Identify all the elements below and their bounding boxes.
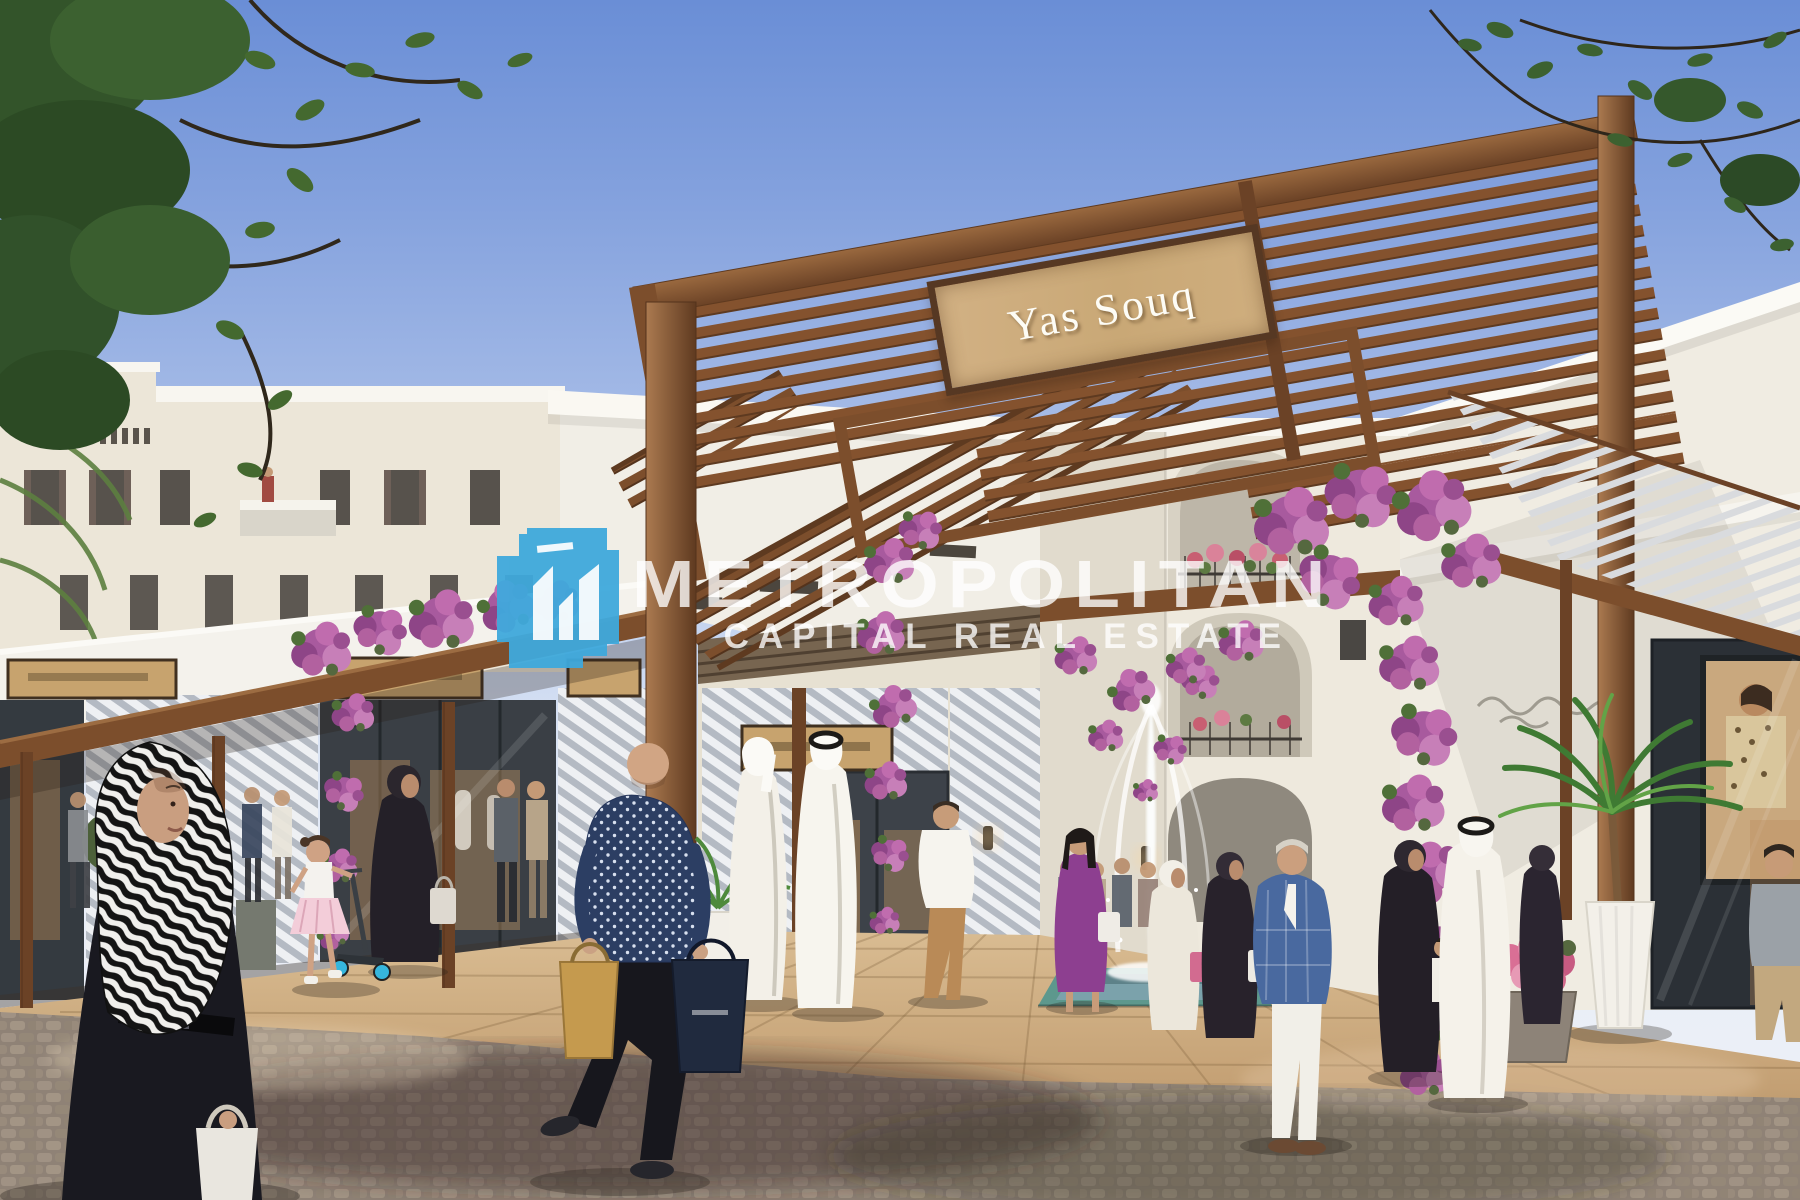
architectural-render: Yas Souq METROPOLITAN CAPITAL REAL ESTAT…: [0, 0, 1800, 1200]
yas-souq-sign-text: Yas Souq: [1004, 268, 1199, 351]
render-artwork: [0, 0, 1800, 1200]
